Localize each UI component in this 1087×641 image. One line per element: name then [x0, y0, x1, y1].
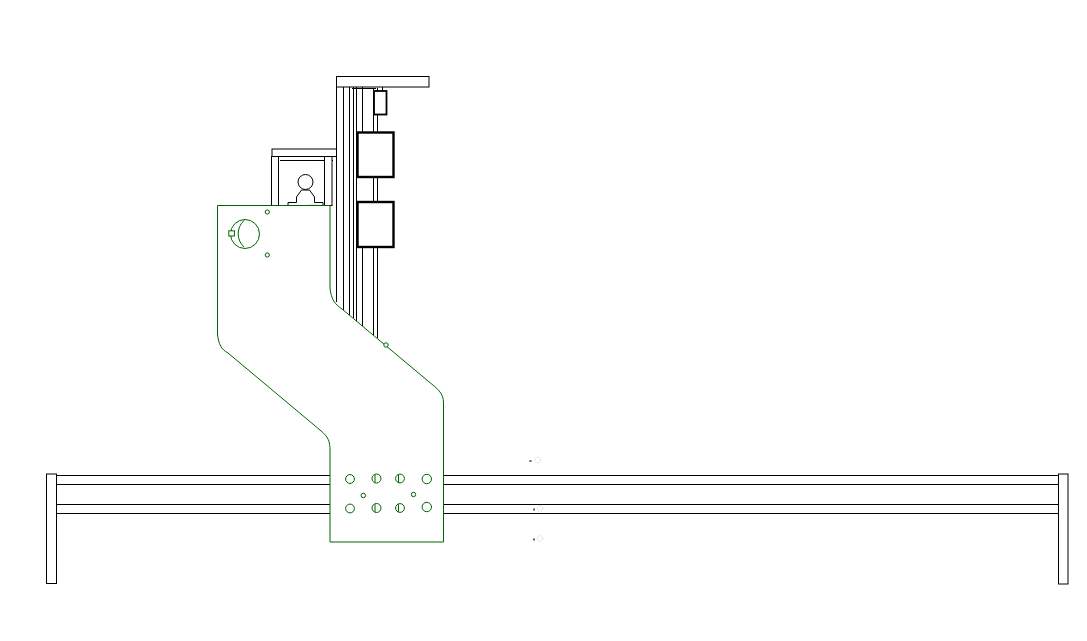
bore-keyway-notch [229, 231, 235, 236]
carriage-block-upper[interactable]: Upper carriage block [358, 133, 394, 178]
column-top-plate[interactable]: Column top plate [337, 77, 430, 88]
bracket-top-bar [272, 149, 337, 157]
gantry-plate[interactable]: Gantry side plate Mounting bolt holes [218, 206, 444, 543]
center-mark-circle [537, 536, 543, 542]
center-mark-dot [533, 539, 535, 541]
center-mark-circle [535, 457, 541, 463]
right-end-plate[interactable] [1059, 474, 1069, 584]
center-marks: Faint center marks [530, 457, 543, 541]
shaft-coupler-block[interactable]: Shaft coupler block [374, 91, 387, 115]
gantry-plate-outline [218, 206, 444, 543]
center-mark-dot [530, 460, 532, 462]
center-mark-dot [533, 509, 535, 511]
motor-shaft-circle [298, 175, 313, 190]
bracket-left-post [272, 157, 279, 206]
machine-elevation-drawing: X-axis rail extrusion Z-axis column [0, 0, 1087, 641]
shaft-base-step [297, 190, 315, 203]
motor-bracket[interactable]: Motor mount bracket [272, 149, 337, 206]
carriage-block-lower[interactable]: Lower carriage block [358, 202, 394, 247]
cad-drawing-canvas[interactable]: X-axis rail extrusion Z-axis column [0, 0, 1087, 641]
bracket-right-post [325, 157, 333, 206]
bolt-hole [384, 343, 388, 347]
center-mark-circle [537, 506, 543, 512]
left-end-plate[interactable] [47, 474, 57, 584]
x-rail[interactable]: X-axis rail extrusion [57, 475, 1059, 514]
